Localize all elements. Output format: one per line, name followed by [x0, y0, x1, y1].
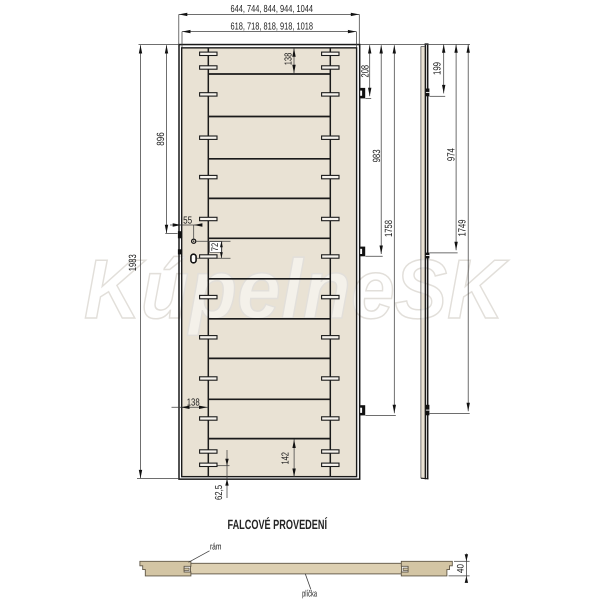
svg-text:896: 896 [155, 132, 167, 146]
svg-text:1983: 1983 [127, 254, 139, 271]
svg-text:199: 199 [431, 62, 443, 75]
svg-text:208: 208 [359, 65, 371, 78]
svg-text:983: 983 [371, 149, 383, 162]
svg-text:138: 138 [187, 398, 200, 409]
svg-text:644, 744, 844, 944, 1044: 644, 744, 844, 944, 1044 [231, 4, 314, 15]
svg-text:plíčka: plíčka [302, 588, 318, 598]
svg-text:62,5: 62,5 [214, 485, 225, 500]
svg-text:1749: 1749 [457, 219, 469, 236]
svg-text:KúpelneSK: KúpelneSK [84, 242, 509, 336]
svg-text:974: 974 [446, 148, 458, 161]
svg-text:142: 142 [281, 452, 292, 465]
svg-text:FALCOVÉ PROVEDENÍ: FALCOVÉ PROVEDENÍ [228, 517, 328, 532]
svg-text:72: 72 [210, 243, 221, 252]
svg-text:55: 55 [183, 215, 192, 226]
svg-text:618, 718, 818, 918, 1018: 618, 718, 818, 918, 1018 [231, 21, 314, 32]
svg-text:138: 138 [283, 53, 294, 66]
svg-text:1758: 1758 [383, 220, 395, 237]
svg-text:40: 40 [456, 564, 467, 573]
svg-text:rám: rám [210, 542, 222, 552]
